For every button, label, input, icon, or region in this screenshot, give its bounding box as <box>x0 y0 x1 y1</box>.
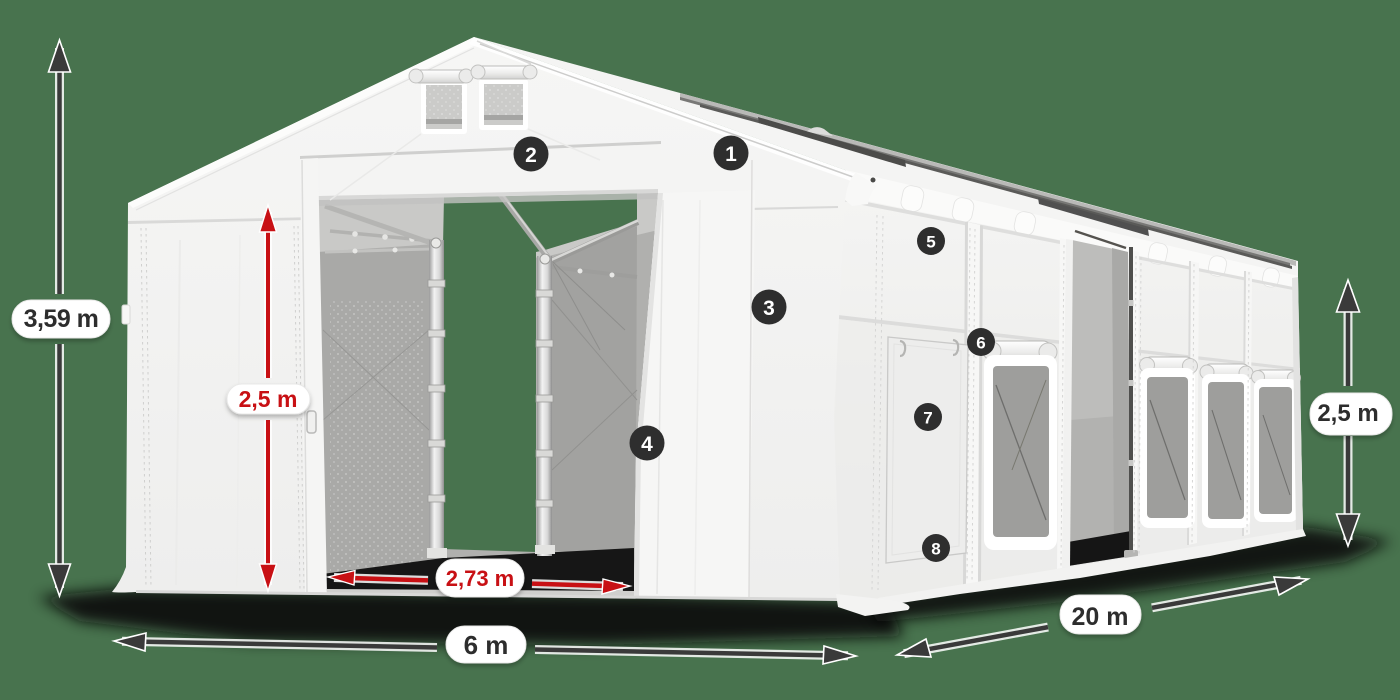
svg-text:6: 6 <box>976 334 985 353</box>
svg-text:1: 1 <box>725 143 737 166</box>
svg-text:7: 7 <box>923 409 932 428</box>
svg-text:5: 5 <box>926 233 935 252</box>
svg-text:2,5 m: 2,5 m <box>239 386 298 412</box>
svg-text:2,73 m: 2,73 m <box>446 566 515 591</box>
svg-text:8: 8 <box>931 540 940 559</box>
svg-text:2,5 m: 2,5 m <box>1317 400 1378 427</box>
svg-text:4: 4 <box>641 433 653 456</box>
svg-text:2: 2 <box>525 144 537 167</box>
svg-text:20 m: 20 m <box>1072 603 1129 631</box>
svg-text:3: 3 <box>763 297 775 320</box>
svg-text:3,59 m: 3,59 m <box>24 305 99 333</box>
svg-text:6 m: 6 m <box>464 630 509 660</box>
